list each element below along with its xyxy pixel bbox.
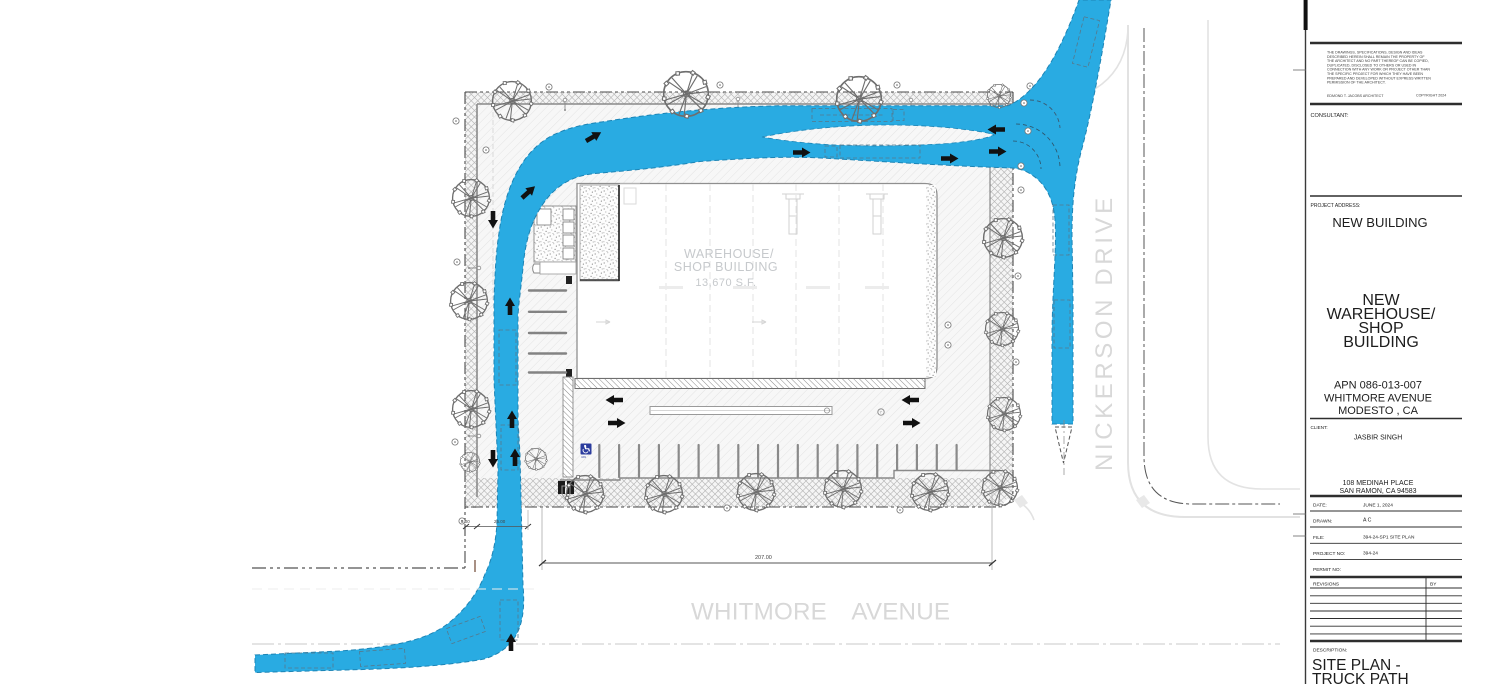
- svg-text:PERMISSION OF THE ARCHITECT.: PERMISSION OF THE ARCHITECT.: [1327, 81, 1386, 85]
- svg-text:CLIENT:: CLIENT:: [1311, 425, 1328, 430]
- svg-text:108 MEDINAH PLACE: 108 MEDINAH PLACE: [1343, 480, 1414, 487]
- svg-text:NICKERSON DRIVE: NICKERSON DRIVE: [1091, 194, 1118, 471]
- svg-text:DESCRIPTION:: DESCRIPTION:: [1313, 648, 1347, 654]
- svg-text:SAN RAMON, CA 94583: SAN RAMON, CA 94583: [1339, 488, 1416, 495]
- svg-text:BUILDING: BUILDING: [1343, 334, 1419, 351]
- svg-text:DRAWN:: DRAWN:: [1313, 519, 1332, 525]
- svg-text:PROJECT ADDRESS:: PROJECT ADDRESS:: [1311, 203, 1361, 209]
- svg-text:COPYRIGHT 2024: COPYRIGHT 2024: [1416, 94, 1446, 98]
- svg-text:PERMIT NO:: PERMIT NO:: [1313, 567, 1341, 573]
- svg-text:MODESTO , CA: MODESTO , CA: [1338, 405, 1419, 417]
- svg-text:EDMOND T. JACOBS ARCHITECT: EDMOND T. JACOBS ARCHITECT: [1327, 94, 1384, 98]
- svg-text:FILE:: FILE:: [1313, 535, 1324, 541]
- svg-text:7: 7: [880, 411, 882, 415]
- svg-text:WHITMORE AVENUE: WHITMORE AVENUE: [1324, 393, 1432, 405]
- svg-text:VAN: VAN: [581, 455, 586, 459]
- svg-text:WAREHOUSE/: WAREHOUSE/: [684, 247, 774, 261]
- svg-text:26.00: 26.00: [494, 519, 506, 524]
- svg-text:394-24: 394-24: [1363, 551, 1378, 557]
- svg-text:JASBIR SINGH: JASBIR SINGH: [1354, 435, 1403, 442]
- svg-text:CONSULTANT:: CONSULTANT:: [1311, 113, 1349, 119]
- svg-text:DATE:: DATE:: [1313, 503, 1327, 509]
- svg-text:TRUCK PATH: TRUCK PATH: [1312, 671, 1409, 684]
- svg-text:APN 086-013-007: APN 086-013-007: [1334, 380, 1422, 392]
- svg-text:PROJECT NO:: PROJECT NO:: [1313, 551, 1345, 557]
- svg-text:BY: BY: [1430, 582, 1437, 588]
- svg-text:207.00: 207.00: [755, 555, 772, 561]
- svg-text:A C: A C: [1363, 518, 1372, 524]
- svg-text:5.00: 5.00: [461, 519, 470, 524]
- svg-text:394-24-SP1 SITE PLAN: 394-24-SP1 SITE PLAN: [1363, 534, 1415, 540]
- svg-text:NEW BUILDING: NEW BUILDING: [1332, 215, 1427, 230]
- svg-text:SHOP BUILDING: SHOP BUILDING: [674, 260, 778, 274]
- svg-text:JUNE 1, 2024: JUNE 1, 2024: [1363, 503, 1393, 509]
- svg-text:WHITMORE AVENUE: WHITMORE AVENUE: [691, 599, 950, 626]
- svg-text:REVISIONS: REVISIONS: [1313, 582, 1339, 588]
